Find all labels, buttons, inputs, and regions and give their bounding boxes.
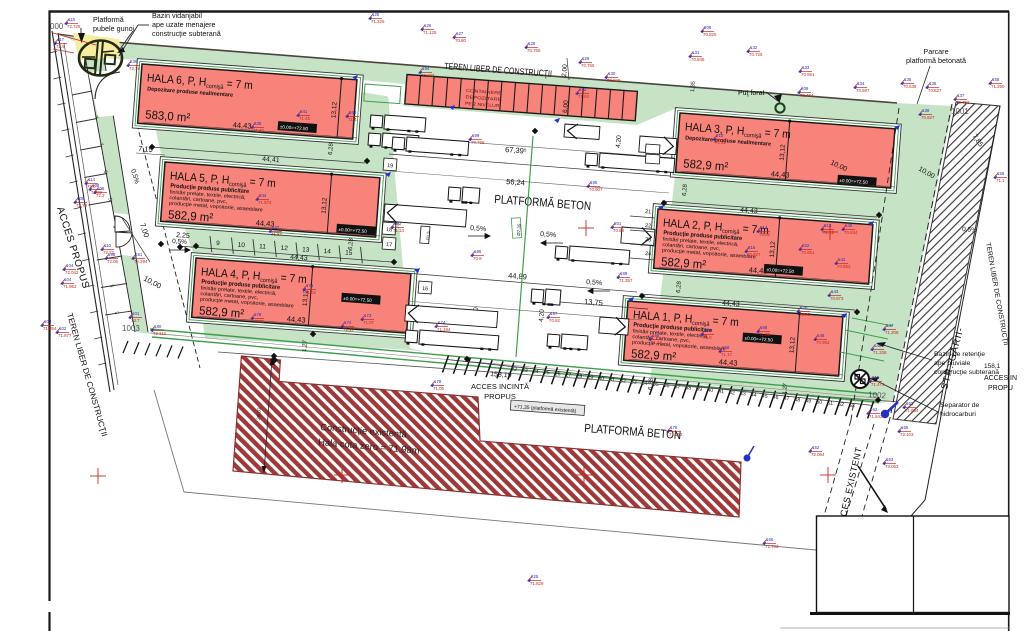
svg-text:166: 166 [766, 537, 774, 542]
svg-text:181: 181 [135, 252, 143, 257]
svg-text:70.851: 70.851 [801, 250, 815, 255]
svg-text:22: 22 [645, 223, 652, 229]
svg-text:194: 194 [422, 66, 430, 71]
svg-text:178: 178 [434, 379, 442, 384]
svg-text:242: 242 [579, 87, 587, 92]
svg-text:1,27: 1,27 [782, 383, 789, 394]
svg-text:71.125: 71.125 [423, 30, 437, 35]
svg-text:126: 126 [424, 23, 432, 28]
svg-text:140: 140 [845, 223, 853, 228]
svg-text:0,5%: 0,5% [586, 279, 602, 287]
svg-text:132: 132 [750, 45, 758, 50]
svg-text:215: 215 [872, 375, 880, 380]
svg-text:1001: 1001 [951, 107, 969, 116]
svg-text:36: 36 [663, 383, 669, 389]
svg-text:72.294: 72.294 [134, 259, 148, 264]
svg-text:71.42: 71.42 [253, 128, 265, 133]
svg-text:142: 142 [838, 257, 846, 262]
svg-text:4,20: 4,20 [615, 135, 623, 149]
svg-text:72.053: 72.053 [885, 464, 899, 469]
svg-text:17: 17 [386, 242, 393, 248]
svg-text:136: 136 [929, 81, 937, 86]
svg-text:72.103: 72.103 [900, 432, 914, 437]
svg-text:0,5%: 0,5% [540, 231, 556, 239]
svg-text:71.963: 71.963 [63, 284, 77, 289]
svg-text:70.825: 70.825 [703, 32, 717, 37]
svg-text:70.834: 70.834 [844, 230, 858, 235]
svg-text:construcţie subterană: construcţie subterană [934, 369, 999, 376]
svg-text:1,27: 1,27 [302, 339, 309, 352]
svg-text:13,12: 13,12 [769, 241, 777, 258]
svg-text:51: 51 [827, 401, 833, 407]
svg-text:213: 213 [824, 223, 832, 228]
svg-text:1003: 1003 [122, 324, 140, 333]
svg-text:70.88: 70.88 [613, 228, 625, 233]
svg-text:241: 241 [300, 109, 308, 114]
svg-text:71.4: 71.4 [348, 117, 357, 122]
svg-text:13,75: 13,75 [584, 297, 603, 307]
svg-text:138: 138 [922, 108, 930, 113]
svg-text:6,28: 6,28 [676, 280, 683, 293]
svg-text:44,89: 44,89 [508, 271, 527, 281]
svg-text:70.80: 70.80 [455, 38, 467, 43]
svg-text:71.842: 71.842 [869, 414, 883, 419]
svg-text:71.208: 71.208 [885, 330, 899, 335]
svg-text:101: 101 [132, 311, 140, 316]
svg-text:199: 199 [472, 133, 480, 138]
svg-text:103: 103 [44, 319, 52, 324]
svg-text:10: 10 [237, 242, 245, 250]
svg-text:134: 134 [857, 81, 865, 86]
svg-text:71.194: 71.194 [437, 327, 451, 332]
svg-text:70.82: 70.82 [715, 140, 727, 145]
svg-text:6,28: 6,28 [682, 183, 689, 196]
svg-text:128: 128 [528, 41, 536, 46]
svg-text:131: 131 [692, 50, 700, 55]
svg-text:146: 146 [817, 333, 825, 338]
svg-text:216: 216 [748, 245, 756, 250]
svg-text:71.14: 71.14 [393, 228, 405, 233]
svg-text:71.152: 71.152 [669, 432, 683, 437]
svg-text:Bazin vidanjabil: Bazin vidanjabil [152, 11, 202, 20]
svg-text:180: 180 [154, 324, 162, 329]
svg-text:72.703: 72.703 [765, 544, 779, 549]
svg-text:165: 165 [652, 333, 660, 338]
svg-text:12: 12 [280, 245, 288, 253]
svg-text:23: 23 [645, 237, 652, 243]
svg-text:71.57: 71.57 [271, 232, 283, 237]
svg-text:44,43: 44,43 [290, 254, 308, 262]
svg-text:0,5%: 0,5% [962, 226, 978, 234]
svg-text:construcţie subterană: construcţie subterană [152, 29, 221, 38]
svg-text:209: 209 [801, 86, 809, 91]
svg-text:46: 46 [772, 395, 778, 401]
svg-text:220: 220 [800, 305, 808, 310]
svg-text:158: 158 [992, 77, 1000, 82]
svg-text:71.19: 71.19 [343, 327, 355, 332]
svg-text:208: 208 [704, 25, 712, 30]
svg-text:hidrocarburi: hidrocarburi [940, 411, 976, 418]
svg-text:70.873: 70.873 [830, 296, 844, 301]
svg-text:70.827: 70.827 [747, 252, 761, 257]
svg-text:70.9: 70.9 [473, 256, 482, 261]
svg-text:44,43: 44,43 [740, 207, 758, 215]
svg-text:48: 48 [794, 397, 800, 403]
svg-text:71.12: 71.12 [823, 230, 835, 235]
svg-text:110: 110 [104, 243, 112, 248]
svg-text:104: 104 [66, 263, 74, 268]
svg-text:171: 171 [306, 283, 314, 288]
svg-text:14: 14 [323, 248, 331, 256]
svg-text:72.72: 72.72 [103, 250, 115, 255]
svg-text:155: 155 [997, 171, 1005, 176]
svg-text:16: 16 [422, 286, 429, 292]
svg-text:109: 109 [77, 196, 85, 201]
svg-text:0,5%: 0,5% [470, 225, 486, 233]
svg-text:70.82: 70.82 [759, 232, 771, 237]
svg-text:147: 147 [886, 323, 894, 328]
svg-text:70.627: 70.627 [928, 88, 942, 93]
svg-text:192: 192 [394, 221, 402, 226]
svg-text:13,12: 13,12 [331, 101, 339, 118]
svg-text:15: 15 [345, 250, 353, 258]
svg-text:44,43: 44,43 [722, 300, 740, 308]
svg-text:130: 130 [608, 71, 616, 76]
svg-text:118: 118 [68, 17, 76, 22]
svg-text:70.903: 70.903 [421, 73, 435, 78]
svg-text:70.953: 70.953 [816, 340, 830, 345]
svg-text:13,12: 13,12 [779, 144, 787, 161]
svg-text:70.454: 70.454 [800, 93, 814, 98]
svg-text:24: 24 [645, 251, 652, 257]
svg-text:176: 176 [670, 425, 678, 430]
svg-text:214: 214 [760, 225, 768, 230]
svg-text:71.829: 71.829 [530, 581, 544, 586]
svg-text:70.765: 70.765 [471, 140, 485, 145]
svg-text:70.765: 70.765 [527, 48, 541, 53]
svg-text:71.0: 71.0 [703, 335, 712, 340]
svg-text:72.9: 72.9 [56, 44, 65, 49]
svg-text:Ø7,35: Ø7,35 [516, 223, 522, 236]
svg-text:45: 45 [762, 394, 768, 400]
svg-text:19: 19 [387, 163, 394, 169]
svg-text:35: 35 [653, 382, 659, 388]
svg-text:4,20: 4,20 [538, 309, 546, 323]
svg-text:6,00: 6,00 [562, 100, 570, 114]
svg-text:137: 137 [957, 93, 965, 98]
svg-text:PROPU: PROPU [988, 385, 1013, 392]
svg-text:70.597: 70.597 [856, 88, 870, 93]
svg-text:225: 225 [531, 574, 539, 579]
svg-text:25: 25 [544, 370, 550, 376]
svg-text:71.474: 71.474 [871, 382, 885, 387]
svg-text:71.325: 71.325 [371, 19, 385, 24]
svg-text:70.846: 70.846 [691, 57, 705, 62]
svg-text:platformă betonată: platformă betonată [906, 56, 966, 65]
svg-text:70.756: 70.756 [956, 100, 970, 105]
svg-text:42: 42 [729, 390, 735, 396]
svg-text:149: 149 [874, 343, 882, 348]
svg-text:133: 133 [802, 65, 810, 70]
svg-text:71.07: 71.07 [363, 320, 375, 325]
svg-text:153: 153 [886, 457, 894, 462]
svg-text:21: 21 [645, 209, 652, 215]
svg-text:168: 168 [760, 325, 768, 330]
svg-text:127: 127 [456, 31, 464, 36]
svg-text:Puţ forat: Puţ forat [738, 90, 765, 97]
svg-text:236: 236 [130, 59, 138, 64]
svg-text:169: 169 [704, 328, 712, 333]
svg-text:178: 178 [254, 312, 262, 317]
svg-text:71.05: 71.05 [433, 386, 445, 391]
svg-text:71.357: 71.357 [619, 278, 633, 283]
svg-text:13,12: 13,12 [789, 336, 797, 353]
svg-text:187: 187 [272, 225, 280, 230]
svg-text:ACCES INCINTĂ: ACCES INCINTĂ [471, 382, 529, 391]
svg-text:174: 174 [344, 320, 352, 325]
svg-text:24: 24 [533, 369, 539, 375]
svg-text:72.042: 72.042 [65, 270, 79, 275]
svg-text:174: 174 [438, 320, 446, 325]
svg-text:195: 195 [590, 180, 598, 185]
svg-text:Separator de: Separator de [940, 402, 980, 409]
svg-text:D1.5: D1.5 [425, 231, 431, 241]
svg-text:50: 50 [816, 399, 822, 405]
svg-text:125: 125 [372, 12, 380, 17]
svg-text:44: 44 [751, 392, 757, 398]
svg-text:143: 143 [831, 289, 839, 294]
svg-text:11: 11 [259, 243, 267, 251]
svg-text:71.834: 71.834 [905, 408, 919, 413]
svg-text:70.827: 70.827 [921, 115, 935, 120]
svg-text:201: 201 [614, 221, 622, 226]
svg-text:29,03: 29,03 [256, 407, 263, 420]
svg-text:Bazin de retenţie: Bazin de retenţie [934, 351, 985, 358]
svg-text:72.73: 72.73 [76, 203, 88, 208]
svg-text:1,35: 1,35 [690, 81, 697, 92]
svg-text:114: 114 [88, 177, 96, 182]
svg-text:71.05: 71.05 [759, 332, 771, 337]
svg-text:70.82: 70.82 [549, 318, 561, 323]
svg-text:108: 108 [92, 183, 100, 188]
svg-text:71.05: 71.05 [253, 319, 265, 324]
svg-text:71.574: 71.574 [258, 200, 272, 205]
svg-text:71.02: 71.02 [305, 290, 317, 295]
svg-text:53: 53 [849, 403, 855, 409]
svg-text:71.63: 71.63 [578, 94, 590, 99]
svg-text:173: 173 [364, 313, 372, 318]
svg-text:152: 152 [812, 445, 820, 450]
svg-text:13,12: 13,12 [321, 197, 329, 214]
svg-text:196: 196 [474, 249, 482, 254]
svg-text:210: 210 [716, 133, 724, 138]
svg-text:37: 37 [674, 384, 680, 390]
svg-text:44,41: 44,41 [262, 156, 280, 164]
svg-text:162: 162 [870, 407, 878, 412]
svg-text:49: 49 [805, 398, 811, 404]
svg-text:29: 29 [587, 375, 593, 381]
svg-text:244: 244 [259, 193, 267, 198]
svg-text:43: 43 [740, 391, 746, 397]
svg-text:23: 23 [522, 368, 528, 374]
svg-text:70.635: 70.635 [903, 84, 917, 89]
svg-text:71.338: 71.338 [873, 350, 887, 355]
svg-text:72.18: 72.18 [129, 66, 141, 71]
svg-text:41: 41 [718, 389, 724, 395]
svg-text:71.15: 71.15 [651, 340, 663, 345]
svg-text:31: 31 [609, 377, 615, 383]
svg-text:pubele gunoi: pubele gunoi [93, 24, 135, 33]
svg-text:153: 153 [906, 401, 914, 406]
svg-text:72.09: 72.09 [91, 190, 103, 195]
svg-text:71.45: 71.45 [299, 116, 311, 121]
svg-text:72.054: 72.054 [811, 452, 825, 457]
svg-text:189: 189 [620, 271, 628, 276]
svg-text:70.829: 70.829 [607, 78, 621, 83]
svg-text:ACCES IN: ACCES IN [984, 375, 1017, 382]
svg-text:52: 52 [838, 402, 844, 408]
svg-text:70.765: 70.765 [581, 63, 595, 68]
svg-text:166: 166 [901, 425, 909, 430]
svg-text:71.854: 71.854 [43, 326, 57, 331]
svg-text:22: 22 [511, 366, 517, 372]
svg-text:70.852: 70.852 [837, 264, 851, 269]
svg-text:71.17: 71.17 [721, 352, 733, 357]
svg-text:240: 240 [349, 110, 357, 115]
svg-text:ape uzate menajere: ape uzate menajere [152, 20, 216, 29]
svg-text:71.250: 71.250 [991, 84, 1005, 89]
svg-text:000: 000 [50, 22, 64, 31]
svg-text:129: 129 [582, 56, 590, 61]
svg-text:117: 117 [57, 37, 65, 42]
svg-text:222: 222 [802, 243, 810, 248]
svg-text:6,28: 6,28 [348, 237, 355, 250]
svg-text:72.112: 72.112 [153, 331, 167, 336]
svg-text:104: 104 [64, 277, 72, 282]
svg-text:70.725: 70.725 [749, 52, 763, 57]
svg-text:Parcare: Parcare [923, 47, 948, 56]
svg-text:2,25: 2,25 [176, 232, 190, 240]
svg-text:72.05: 72.05 [107, 259, 119, 264]
svg-text:71.877: 71.877 [58, 333, 72, 338]
svg-text:72.725: 72.725 [67, 24, 81, 29]
svg-text:70.907: 70.907 [589, 187, 603, 192]
svg-text:135: 135 [904, 77, 912, 82]
svg-text:13: 13 [302, 246, 310, 254]
svg-text:102: 102 [59, 326, 67, 331]
svg-text:168: 168 [722, 345, 730, 350]
svg-text:70.85: 70.85 [799, 312, 811, 317]
svg-text:ape pluviale: ape pluviale [934, 360, 970, 367]
svg-text:70.551: 70.551 [801, 72, 815, 77]
svg-text:71.1: 71.1 [996, 178, 1005, 183]
svg-text:Platformă: Platformă [93, 15, 124, 24]
svg-text:6,28: 6,28 [328, 142, 335, 155]
svg-text:239: 239 [254, 121, 262, 126]
svg-text:56,24: 56,24 [506, 177, 525, 187]
svg-text:30: 30 [598, 376, 604, 382]
svg-text:197: 197 [550, 311, 558, 316]
svg-text:73.7: 73.7 [131, 318, 140, 323]
svg-text:47: 47 [783, 396, 789, 402]
